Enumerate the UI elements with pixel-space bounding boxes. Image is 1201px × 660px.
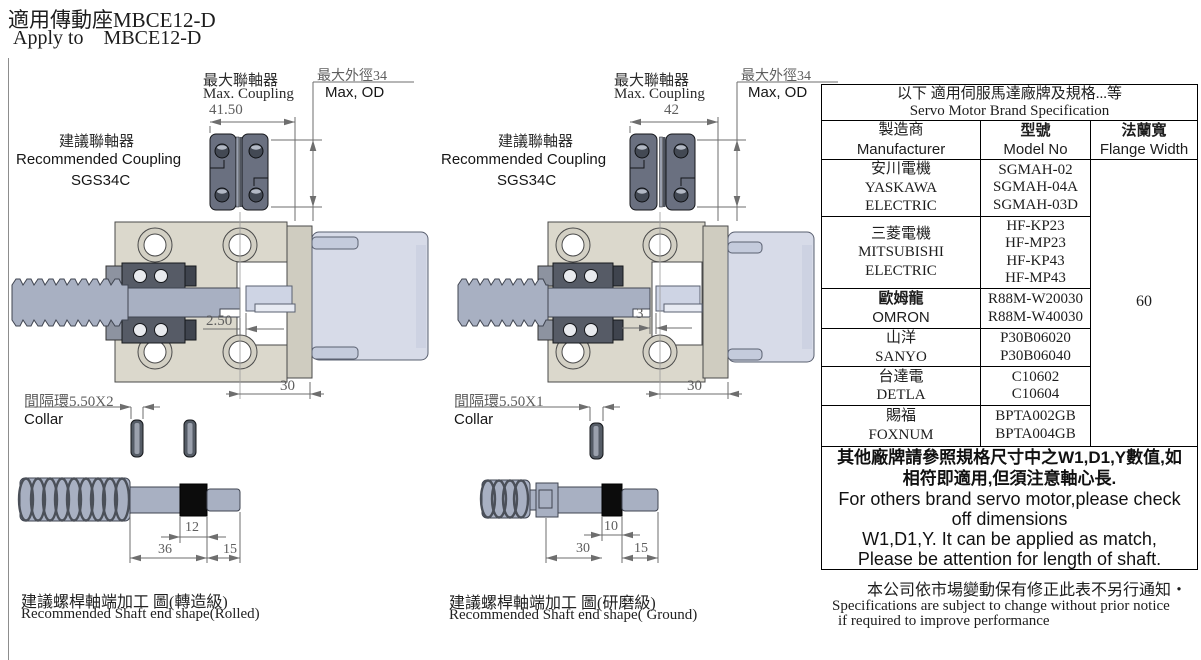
model-line: C10602 <box>1012 369 1060 387</box>
dim-shaft-main-right: 30 <box>576 541 590 557</box>
note-line: 相符即適用,但須注意軸心長. <box>903 468 1116 489</box>
model-line: SGMAH-02 <box>998 162 1072 180</box>
dim-shaft-main-left: 36 <box>158 542 172 558</box>
dim-gap-right: 3 <box>636 306 644 323</box>
header-model-en: Model No <box>1003 140 1067 159</box>
coupling-right <box>630 134 695 210</box>
motor-right <box>728 232 814 362</box>
disclaimer-en-line2: if required to improve performance <box>838 613 1050 630</box>
max-coupling-label-en-right: Max. Coupling <box>614 86 705 103</box>
manufacturer-cell-omron: 歐姆龍 OMRON <box>822 289 980 328</box>
manufacturer-cell-detla: 台達電 DETLA <box>822 367 980 405</box>
mfr-line: ELECTRIC <box>865 262 937 281</box>
manufacturer-cell-mitsubishi: 三菱電機 MITSUBISHI ELECTRIC <box>822 217 980 288</box>
model-line: C10604 <box>1012 386 1060 404</box>
max-od-label-zh-left: 最大外徑34 <box>317 65 387 85</box>
rec-coupling-label-en-right: Recommended Coupling <box>441 151 606 168</box>
mfr-line: DETLA <box>876 386 925 405</box>
shaft-end-drawing-right <box>481 480 658 518</box>
header-flange: 法蘭寬 Flange Width <box>1091 121 1197 159</box>
ballscrew-thread-left <box>12 279 128 326</box>
note-line: Please be attention for length of shaft. <box>858 549 1161 569</box>
collar-label-zh-right: 間隔環5.50X1 <box>454 390 544 411</box>
dim-shaft-mid-left: 12 <box>185 520 199 536</box>
mfr-line: 歐姆龍 <box>878 290 923 309</box>
motor-shaft-left <box>246 286 295 312</box>
model-line: HF-MP43 <box>1005 270 1066 288</box>
models-cell-omron: R88M-W20030 R88M-W40030 <box>981 289 1090 328</box>
mfr-line: 山洋 <box>886 329 916 348</box>
max-od-label-en-right: Max, OD <box>748 84 807 101</box>
note-line: W1,D1,Y. It can be applied as match, <box>862 529 1157 549</box>
servo-motor-spec-table: 以下 適用伺服馬達廠牌及規格...等 Servo Motor Brand Spe… <box>821 84 1198 447</box>
model-line: BPTA004GB <box>995 426 1075 444</box>
model-line: HF-KP43 <box>1006 253 1064 271</box>
shaft-caption-en-right: Recommended Shaft end shape( Ground) <box>449 607 697 624</box>
dim-coupling-width-right: 42 <box>664 102 679 119</box>
mfr-line: FOXNUM <box>868 426 933 445</box>
header-model: 型號 Model No <box>981 121 1090 159</box>
max-od-label-en-left: Max, OD <box>325 84 384 101</box>
manufacturer-cell-sanyo: 山洋 SANYO <box>822 329 980 366</box>
model-line: R88M-W20030 <box>988 291 1083 309</box>
model-line: HF-MP23 <box>1005 235 1066 253</box>
catalog-page: 適用傳動座MBCE12-D Apply to MBCE12-D 最大聯軸器 Ma… <box>0 0 1201 660</box>
models-cell-sanyo: P30B06020 P30B06040 <box>981 329 1090 366</box>
rec-coupling-label-zh-right: 建議聯軸器 <box>498 130 573 151</box>
coupling-left <box>210 134 268 210</box>
rec-coupling-model-left: SGS34C <box>71 172 130 189</box>
mfr-line: YASKAWA <box>865 179 937 198</box>
mfr-line: OMRON <box>872 309 930 328</box>
shaft-caption-en-left: Recommended Shaft end shape(Rolled) <box>21 606 260 623</box>
dim-shaft-end-right: 15 <box>634 541 648 557</box>
disclaimer-zh: 本公司依市場變動保有修正此表不另行通知・ <box>867 576 1187 600</box>
model-line: P30B06020 <box>1000 330 1071 348</box>
header-model-zh: 型號 <box>1020 121 1050 140</box>
page-title-en: Apply to MBCE12-D <box>13 27 201 50</box>
dim-coupling-width-left: 41.50 <box>209 102 243 119</box>
header-manufacturer-en: Manufacturer <box>857 140 945 159</box>
note-line: 其他廠牌請參照規格尺寸中之W1,D1,Y數值,如 <box>837 447 1182 468</box>
max-od-label-zh-right: 最大外徑34 <box>741 65 811 85</box>
models-cell-foxnum: BPTA002GB BPTA004GB <box>981 406 1090 445</box>
rec-coupling-model-right: SGS34C <box>497 172 556 189</box>
mfr-line: 台達電 <box>878 368 923 387</box>
models-cell-detla: C10602 C10604 <box>981 367 1090 405</box>
header-flange-zh: 法蘭寬 <box>1121 121 1166 140</box>
ballscrew-thread-right <box>458 279 548 326</box>
max-coupling-label-en-left: Max. Coupling <box>203 86 294 103</box>
dim-gap-left: 2.50 <box>206 313 232 330</box>
manufacturer-cell-yaskawa: 安川電機 YASKAWA ELECTRIC <box>822 160 980 216</box>
model-line: R88M-W40030 <box>988 309 1083 327</box>
table-title: 以下 適用伺服馬達廠牌及規格...等 Servo Motor Brand Spe… <box>822 85 1197 120</box>
motor-left <box>312 232 428 360</box>
mfr-line: SANYO <box>875 348 927 367</box>
rec-coupling-label-en-left: Recommended Coupling <box>16 151 181 168</box>
models-cell-mitsubishi: HF-KP23 HF-MP23 HF-KP43 HF-MP43 <box>981 217 1090 288</box>
flange-width-value: 60 <box>1136 293 1152 312</box>
model-line: P30B06040 <box>1000 348 1071 366</box>
collar-right <box>590 423 603 459</box>
header-manufacturer: 製造商 Manufacturer <box>822 121 980 159</box>
mfr-line: MITSUBISHI <box>858 243 944 262</box>
header-manufacturer-zh: 製造商 <box>878 121 923 140</box>
model-line: SGMAH-04A <box>993 179 1078 197</box>
manufacturer-cell-foxnum: 賜福 FOXNUM <box>822 406 980 445</box>
dim-shaft-mid-right: 10 <box>604 519 618 535</box>
mfr-line: 賜福 <box>886 407 916 426</box>
rec-coupling-label-zh-left: 建議聯軸器 <box>59 130 134 151</box>
dim-depth-left: 30 <box>280 378 295 395</box>
model-line: BPTA002GB <box>995 408 1075 426</box>
note-line: off dimensions <box>952 509 1068 529</box>
note-line: For others brand servo motor,please chec… <box>838 489 1180 509</box>
model-line: HF-KP23 <box>1006 218 1064 236</box>
mfr-line: 三菱電機 <box>871 225 931 244</box>
header-flange-en: Flange Width <box>1100 140 1188 159</box>
mfr-line: ELECTRIC <box>865 197 937 216</box>
flange-width-value-cell: 60 <box>1091 160 1197 445</box>
collars-left <box>131 420 196 457</box>
mfr-line: 安川電機 <box>871 160 931 179</box>
model-line: SGMAH-03D <box>993 197 1078 215</box>
collar-label-zh-left: 間隔環5.50X2 <box>24 390 114 411</box>
motor-shaft-right <box>656 286 702 312</box>
dim-depth-right: 30 <box>687 378 702 395</box>
collar-label-en-left: Collar <box>24 411 63 428</box>
models-cell-yaskawa: SGMAH-02 SGMAH-04A SGMAH-03D <box>981 160 1090 216</box>
other-brands-note: 其他廠牌請參照規格尺寸中之W1,D1,Y數值,如 相符即適用,但須注意軸心長. … <box>821 446 1198 570</box>
collar-label-en-right: Collar <box>454 411 493 428</box>
table-title-en: Servo Motor Brand Specification <box>910 103 1110 120</box>
dim-shaft-end-left: 15 <box>223 542 237 558</box>
table-title-zh: 以下 適用伺服馬達廠牌及規格...等 <box>897 86 1122 103</box>
